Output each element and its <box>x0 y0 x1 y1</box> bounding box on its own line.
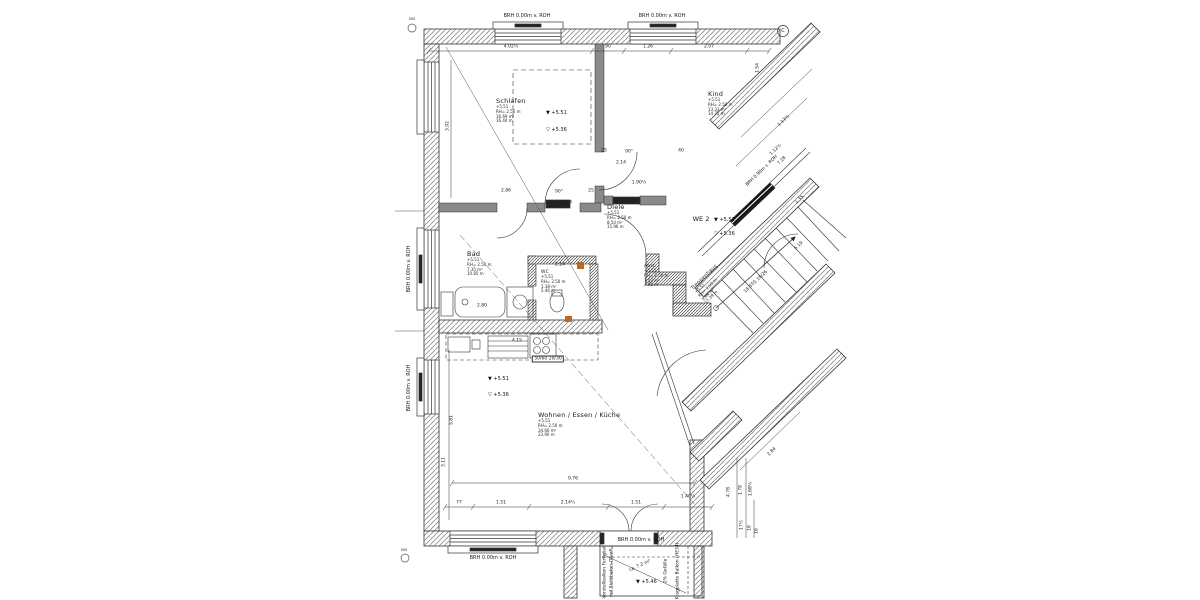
wc-walls <box>528 256 598 320</box>
floorplan-linework <box>0 0 1200 600</box>
bathroom-fixtures <box>441 287 564 317</box>
dimension-lines <box>427 48 812 538</box>
balcony <box>600 546 702 596</box>
floor-plan-canvas: Schlafen+5.51RH= 2.50 m16.69 m²16.44 mKi… <box>0 0 1200 600</box>
exterior-walls <box>424 23 846 598</box>
kitchen-counter <box>446 334 598 360</box>
interior-walls <box>439 44 666 212</box>
